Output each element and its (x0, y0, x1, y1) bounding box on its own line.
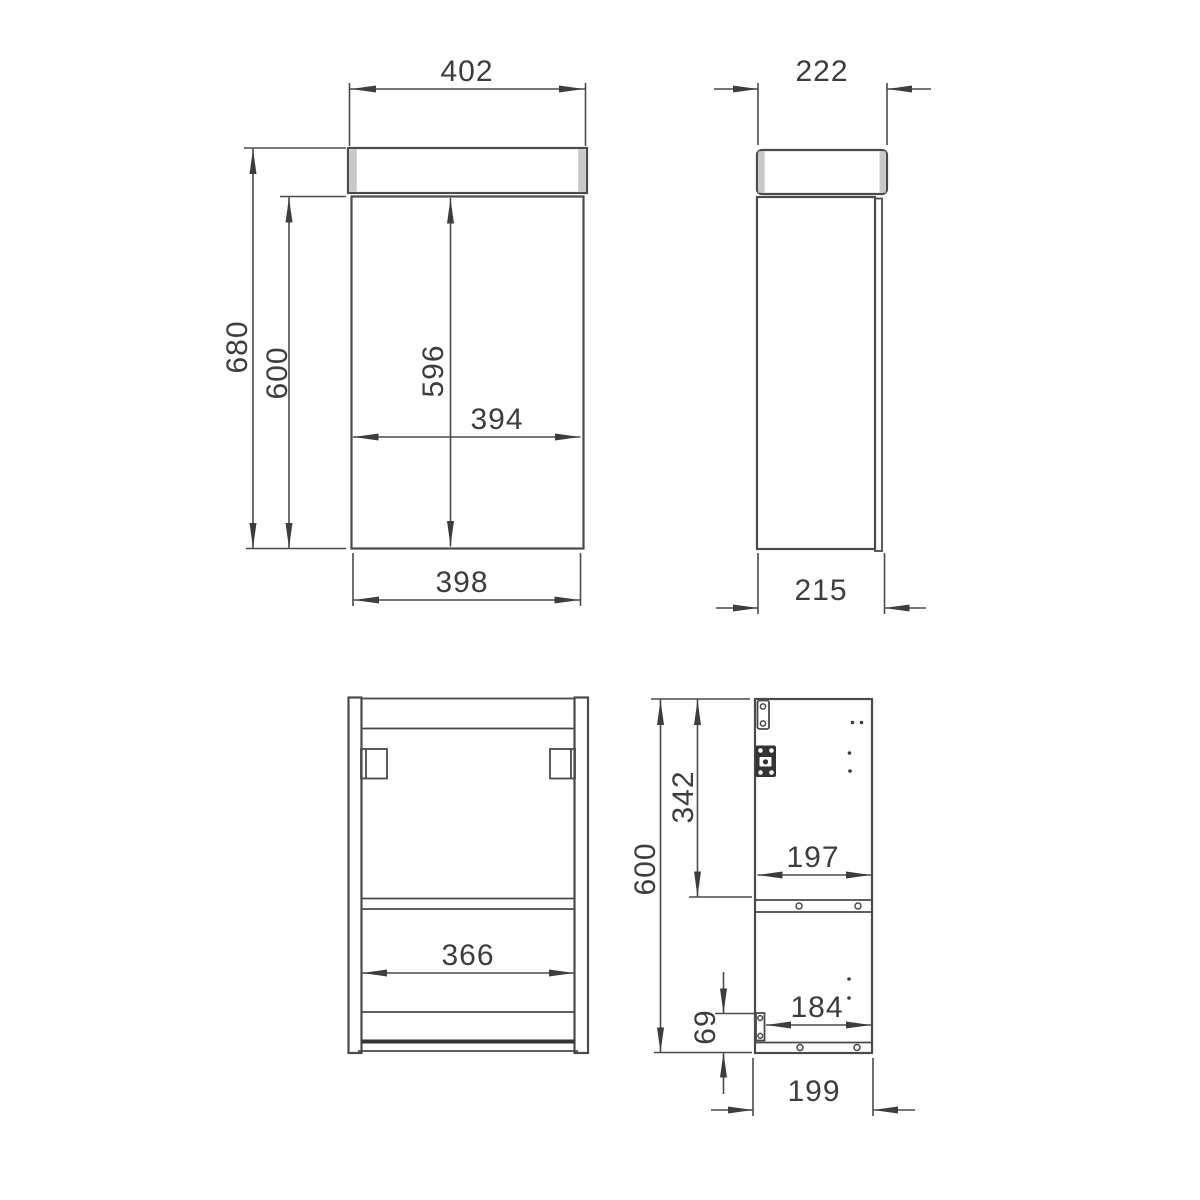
technical-drawing: 402 680 600 596 (0, 0, 1200, 1200)
dim-label: 394 (470, 403, 523, 436)
interior-side-view: 600 342 197 184 (629, 699, 915, 1116)
hinge-pin (763, 759, 768, 764)
arrowhead (733, 86, 758, 93)
dim-label: 596 (417, 344, 450, 397)
wall-bracket-left (361, 749, 387, 779)
dim-front-carcass-height: 600 (261, 197, 346, 549)
hinge-hole (758, 770, 763, 775)
arrowhead (885, 605, 910, 612)
arrowhead (351, 86, 376, 93)
dim-interior-bottom-depth: 199 (711, 1058, 915, 1116)
screw-hole (796, 903, 802, 909)
arrowhead (286, 523, 293, 548)
dim-label: 197 (786, 841, 839, 874)
arrowhead (694, 872, 701, 897)
side-view: 222 215 (714, 55, 931, 614)
arrowhead (887, 86, 912, 93)
dim-label: 680 (221, 320, 254, 373)
side-carcass (757, 197, 875, 549)
dim-interior-bottom-section: 69 (689, 972, 754, 1094)
dim-back-inner-width: 366 (362, 939, 574, 977)
drill-dot (848, 769, 852, 773)
bracket-body (361, 749, 387, 779)
arrowhead (559, 86, 584, 93)
arrowhead (549, 970, 574, 977)
hinge-hole (769, 748, 774, 753)
front-view: 402 680 600 596 (221, 55, 587, 606)
back-stile-right (575, 698, 589, 1054)
dim-label: 69 (689, 1009, 722, 1044)
dim-label: 398 (435, 566, 488, 599)
side-countertop-edge-left (758, 151, 765, 192)
arrowhead (728, 1107, 753, 1114)
dim-label: 199 (787, 1075, 840, 1108)
arrowhead (720, 1053, 727, 1078)
arrowhead (250, 523, 257, 548)
screw-hole (854, 1045, 860, 1051)
dim-label: 222 (795, 55, 848, 88)
dim-side-bottom-depth: 215 (716, 553, 926, 614)
hinge-plate (756, 746, 777, 778)
hinge-hole (758, 748, 763, 753)
arrowhead (657, 1028, 664, 1053)
dim-side-top-depth: 222 (714, 55, 931, 145)
arrowhead (286, 198, 293, 223)
dim-front-top-width: 402 (350, 55, 586, 146)
dim-label: 366 (441, 939, 494, 972)
screw-hole (758, 1016, 763, 1021)
screw-hole (797, 1045, 803, 1051)
dim-interior-top-section: 342 (667, 699, 752, 897)
drill-dot (860, 721, 864, 725)
drill-dot (847, 996, 851, 1000)
back-view: 366 (349, 698, 589, 1054)
hinge-hole (769, 770, 774, 775)
dim-label: 600 (261, 346, 294, 399)
back-stile-left (349, 698, 362, 1054)
dim-label: 215 (794, 574, 847, 607)
dim-label: 342 (667, 770, 700, 823)
drill-dot (851, 721, 855, 725)
arrowhead (362, 970, 387, 977)
front-countertop (348, 148, 587, 193)
dim-label: 600 (629, 842, 662, 895)
dim-label: 402 (440, 55, 493, 88)
arrowhead (250, 149, 257, 174)
side-countertop-edge-right (880, 151, 886, 192)
arrowhead (555, 597, 580, 604)
arrowhead (873, 1107, 898, 1114)
screw-hole (760, 721, 765, 726)
drill-dot (848, 751, 852, 755)
dim-label: 184 (790, 991, 843, 1024)
wall-bracket-right (550, 749, 575, 779)
side-countertop (757, 150, 887, 194)
screw-hole (758, 1033, 763, 1038)
front-countertop-edge-left (349, 149, 357, 191)
arrowhead (657, 700, 664, 725)
screw-hole (760, 704, 765, 709)
arrowhead (354, 597, 379, 604)
arrowhead (733, 605, 758, 612)
front-door-panel (352, 197, 584, 549)
dim-interior-overall-height: 600 (629, 699, 752, 1053)
arrowhead (694, 700, 701, 725)
back-top-rail (362, 699, 575, 729)
drill-dot (847, 977, 851, 981)
dim-front-bottom-width: 398 (353, 553, 581, 606)
screw-hole (855, 903, 861, 909)
front-countertop-edge-right (578, 149, 586, 191)
